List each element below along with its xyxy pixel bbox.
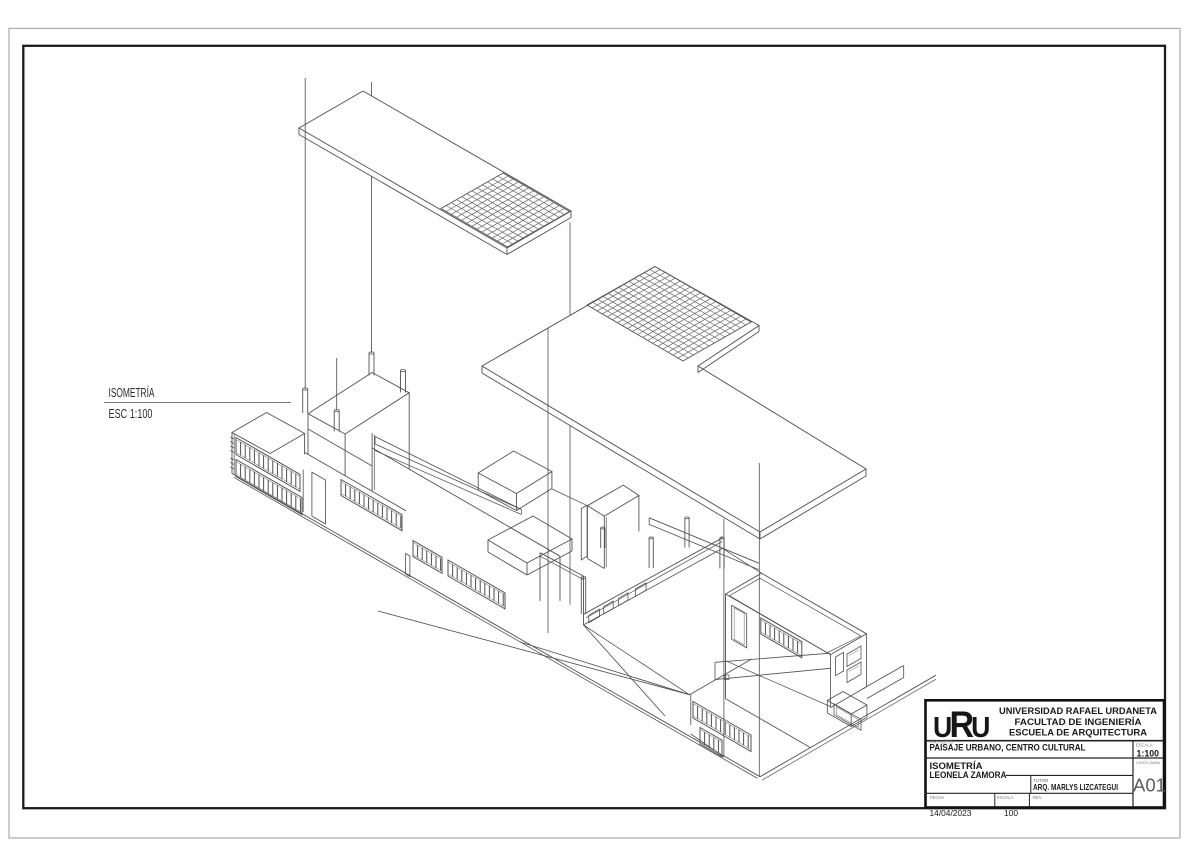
svg-text:1:100: 1:100 — [1137, 748, 1160, 758]
svg-text:A01: A01 — [1133, 775, 1166, 796]
svg-text:LEONELA ZAMORA: LEONELA ZAMORA — [930, 770, 1007, 781]
svg-text:ARQ. MARLYS LIZCATEGUI: ARQ. MARLYS LIZCATEGUI — [1033, 783, 1118, 792]
svg-text:ESCALA: ESCALA — [1136, 743, 1153, 748]
svg-text:FACULTAD DE INGENIERÍA: FACULTAD DE INGENIERÍA — [1015, 716, 1142, 727]
svg-text:REV.: REV. — [1033, 795, 1042, 800]
svg-text:ESCUELA DE ARQUITECTURA: ESCUELA DE ARQUITECTURA — [1009, 727, 1147, 738]
svg-text:100: 100 — [1004, 808, 1018, 818]
svg-text:ISOMETRÍA: ISOMETRÍA — [109, 385, 155, 400]
svg-text:FECHA: FECHA — [930, 795, 944, 800]
svg-text:ESCALA: ESCALA — [997, 795, 1014, 800]
svg-text:UNIVERSIDAD RAFAEL URDANETA: UNIVERSIDAD RAFAEL URDANETA — [999, 705, 1157, 716]
svg-text:U: U — [971, 711, 990, 743]
svg-text:14/04/2023: 14/04/2023 — [930, 808, 972, 818]
svg-text:CODIGO LAMINA: CODIGO LAMINA — [1136, 760, 1160, 765]
svg-text:PAISAJE URBANO, CENTRO CULTURA: PAISAJE URBANO, CENTRO CULTURAL — [930, 743, 1086, 754]
svg-text:ESC 1:100: ESC 1:100 — [109, 407, 153, 421]
